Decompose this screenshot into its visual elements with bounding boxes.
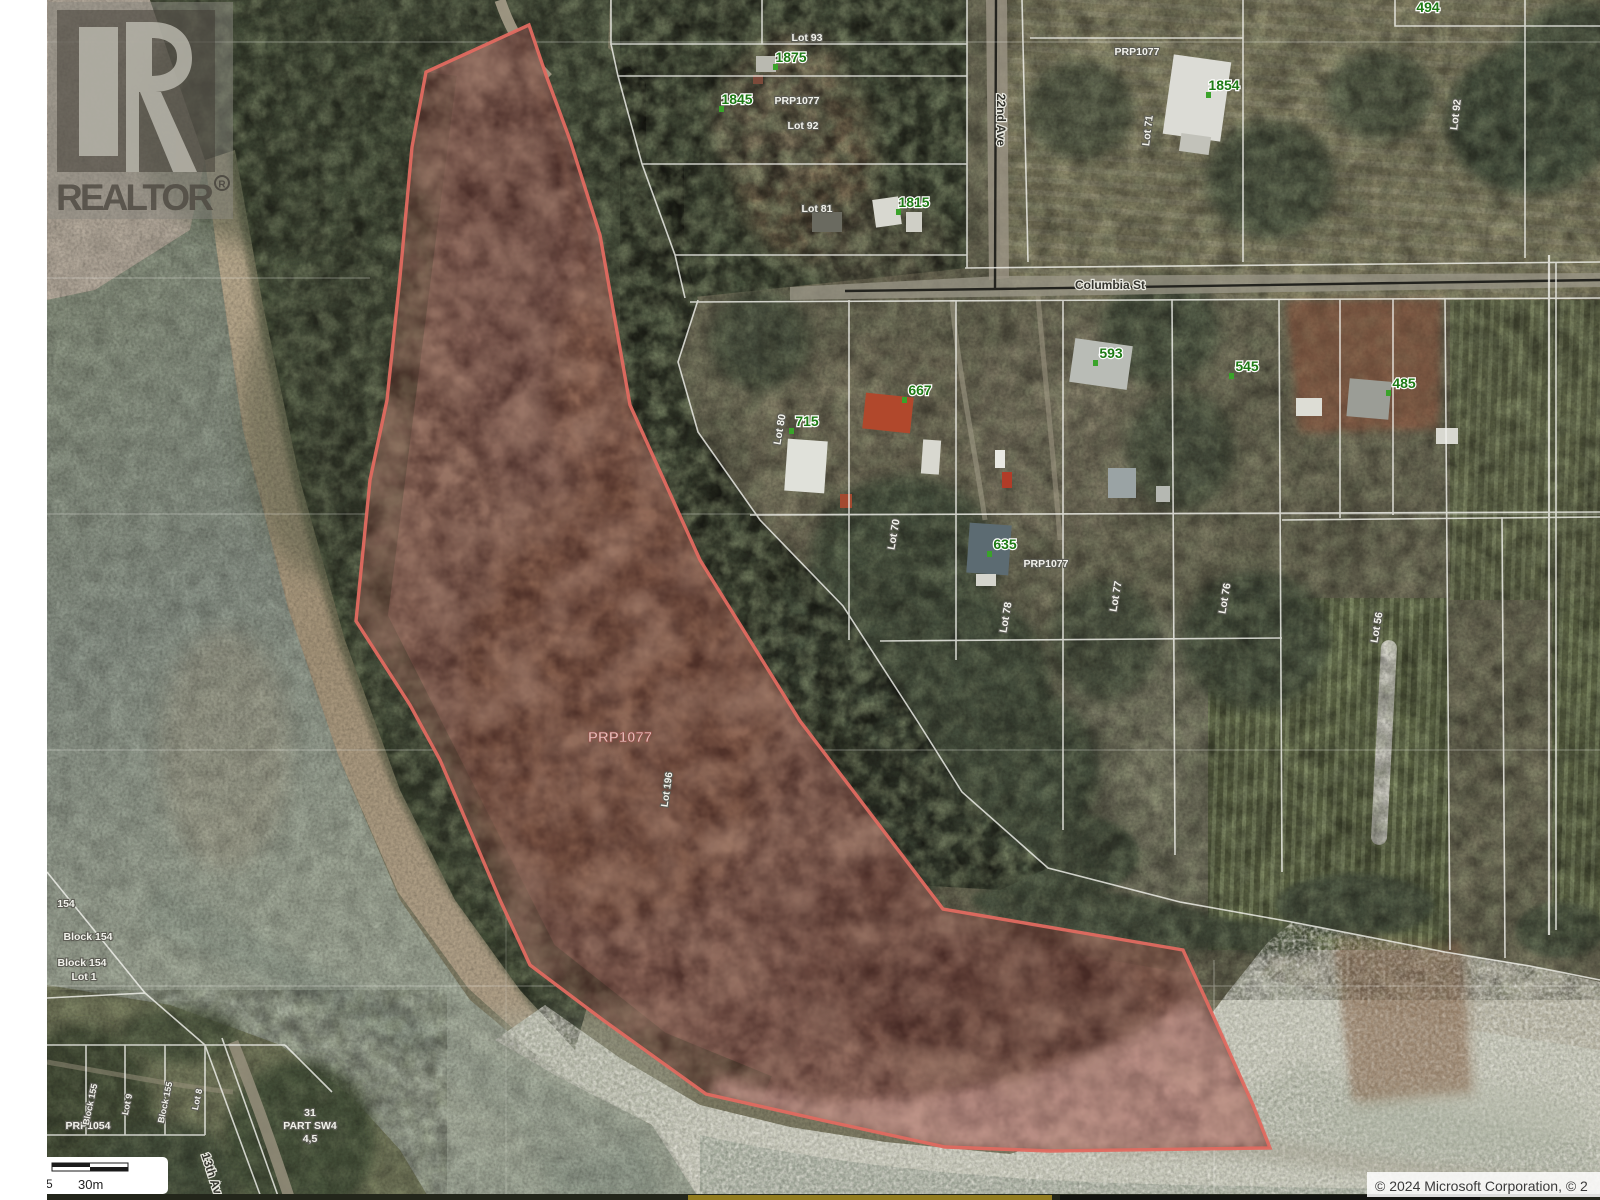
svg-text:31: 31 bbox=[304, 1107, 316, 1119]
svg-text:715: 715 bbox=[795, 413, 819, 429]
svg-text:593: 593 bbox=[1099, 345, 1123, 361]
svg-text:4,5: 4,5 bbox=[303, 1133, 318, 1145]
svg-text:22nd Ave: 22nd Ave bbox=[994, 94, 1008, 147]
svg-text:PRP1077: PRP1077 bbox=[588, 729, 652, 746]
svg-text:Block 154: Block 154 bbox=[57, 957, 106, 969]
svg-text:PART SW4: PART SW4 bbox=[283, 1120, 337, 1132]
svg-text:PRP1077: PRP1077 bbox=[1024, 558, 1069, 570]
svg-text:Lot 81: Lot 81 bbox=[802, 203, 833, 215]
svg-text:154: 154 bbox=[57, 898, 75, 910]
svg-text:30m: 30m bbox=[78, 1177, 103, 1192]
svg-text:© 2024 Microsoft Corporation,: © 2024 Microsoft Corporation, © 2 bbox=[1375, 1178, 1588, 1194]
svg-text:635: 635 bbox=[993, 536, 1017, 552]
svg-text:Columbia St: Columbia St bbox=[1075, 278, 1145, 292]
svg-text:R: R bbox=[218, 180, 226, 191]
svg-text:1875: 1875 bbox=[775, 49, 806, 65]
svg-text:Lot 92: Lot 92 bbox=[788, 120, 819, 132]
svg-text:PRP1077: PRP1077 bbox=[1115, 46, 1160, 58]
svg-text:Lot 93: Lot 93 bbox=[792, 32, 823, 44]
svg-text:494: 494 bbox=[1416, 0, 1440, 15]
svg-text:REALTOR: REALTOR bbox=[56, 177, 214, 218]
svg-text:PRP1077: PRP1077 bbox=[775, 95, 820, 107]
svg-text:1854: 1854 bbox=[1208, 77, 1239, 93]
svg-text:5: 5 bbox=[46, 1177, 53, 1191]
svg-text:667: 667 bbox=[908, 382, 932, 398]
svg-text:545: 545 bbox=[1235, 358, 1259, 374]
svg-text:Block 154: Block 154 bbox=[63, 931, 112, 943]
svg-text:Lot 1: Lot 1 bbox=[71, 971, 96, 983]
svg-text:1815: 1815 bbox=[898, 194, 929, 210]
svg-text:1845: 1845 bbox=[721, 91, 752, 107]
svg-text:485: 485 bbox=[1392, 375, 1416, 391]
